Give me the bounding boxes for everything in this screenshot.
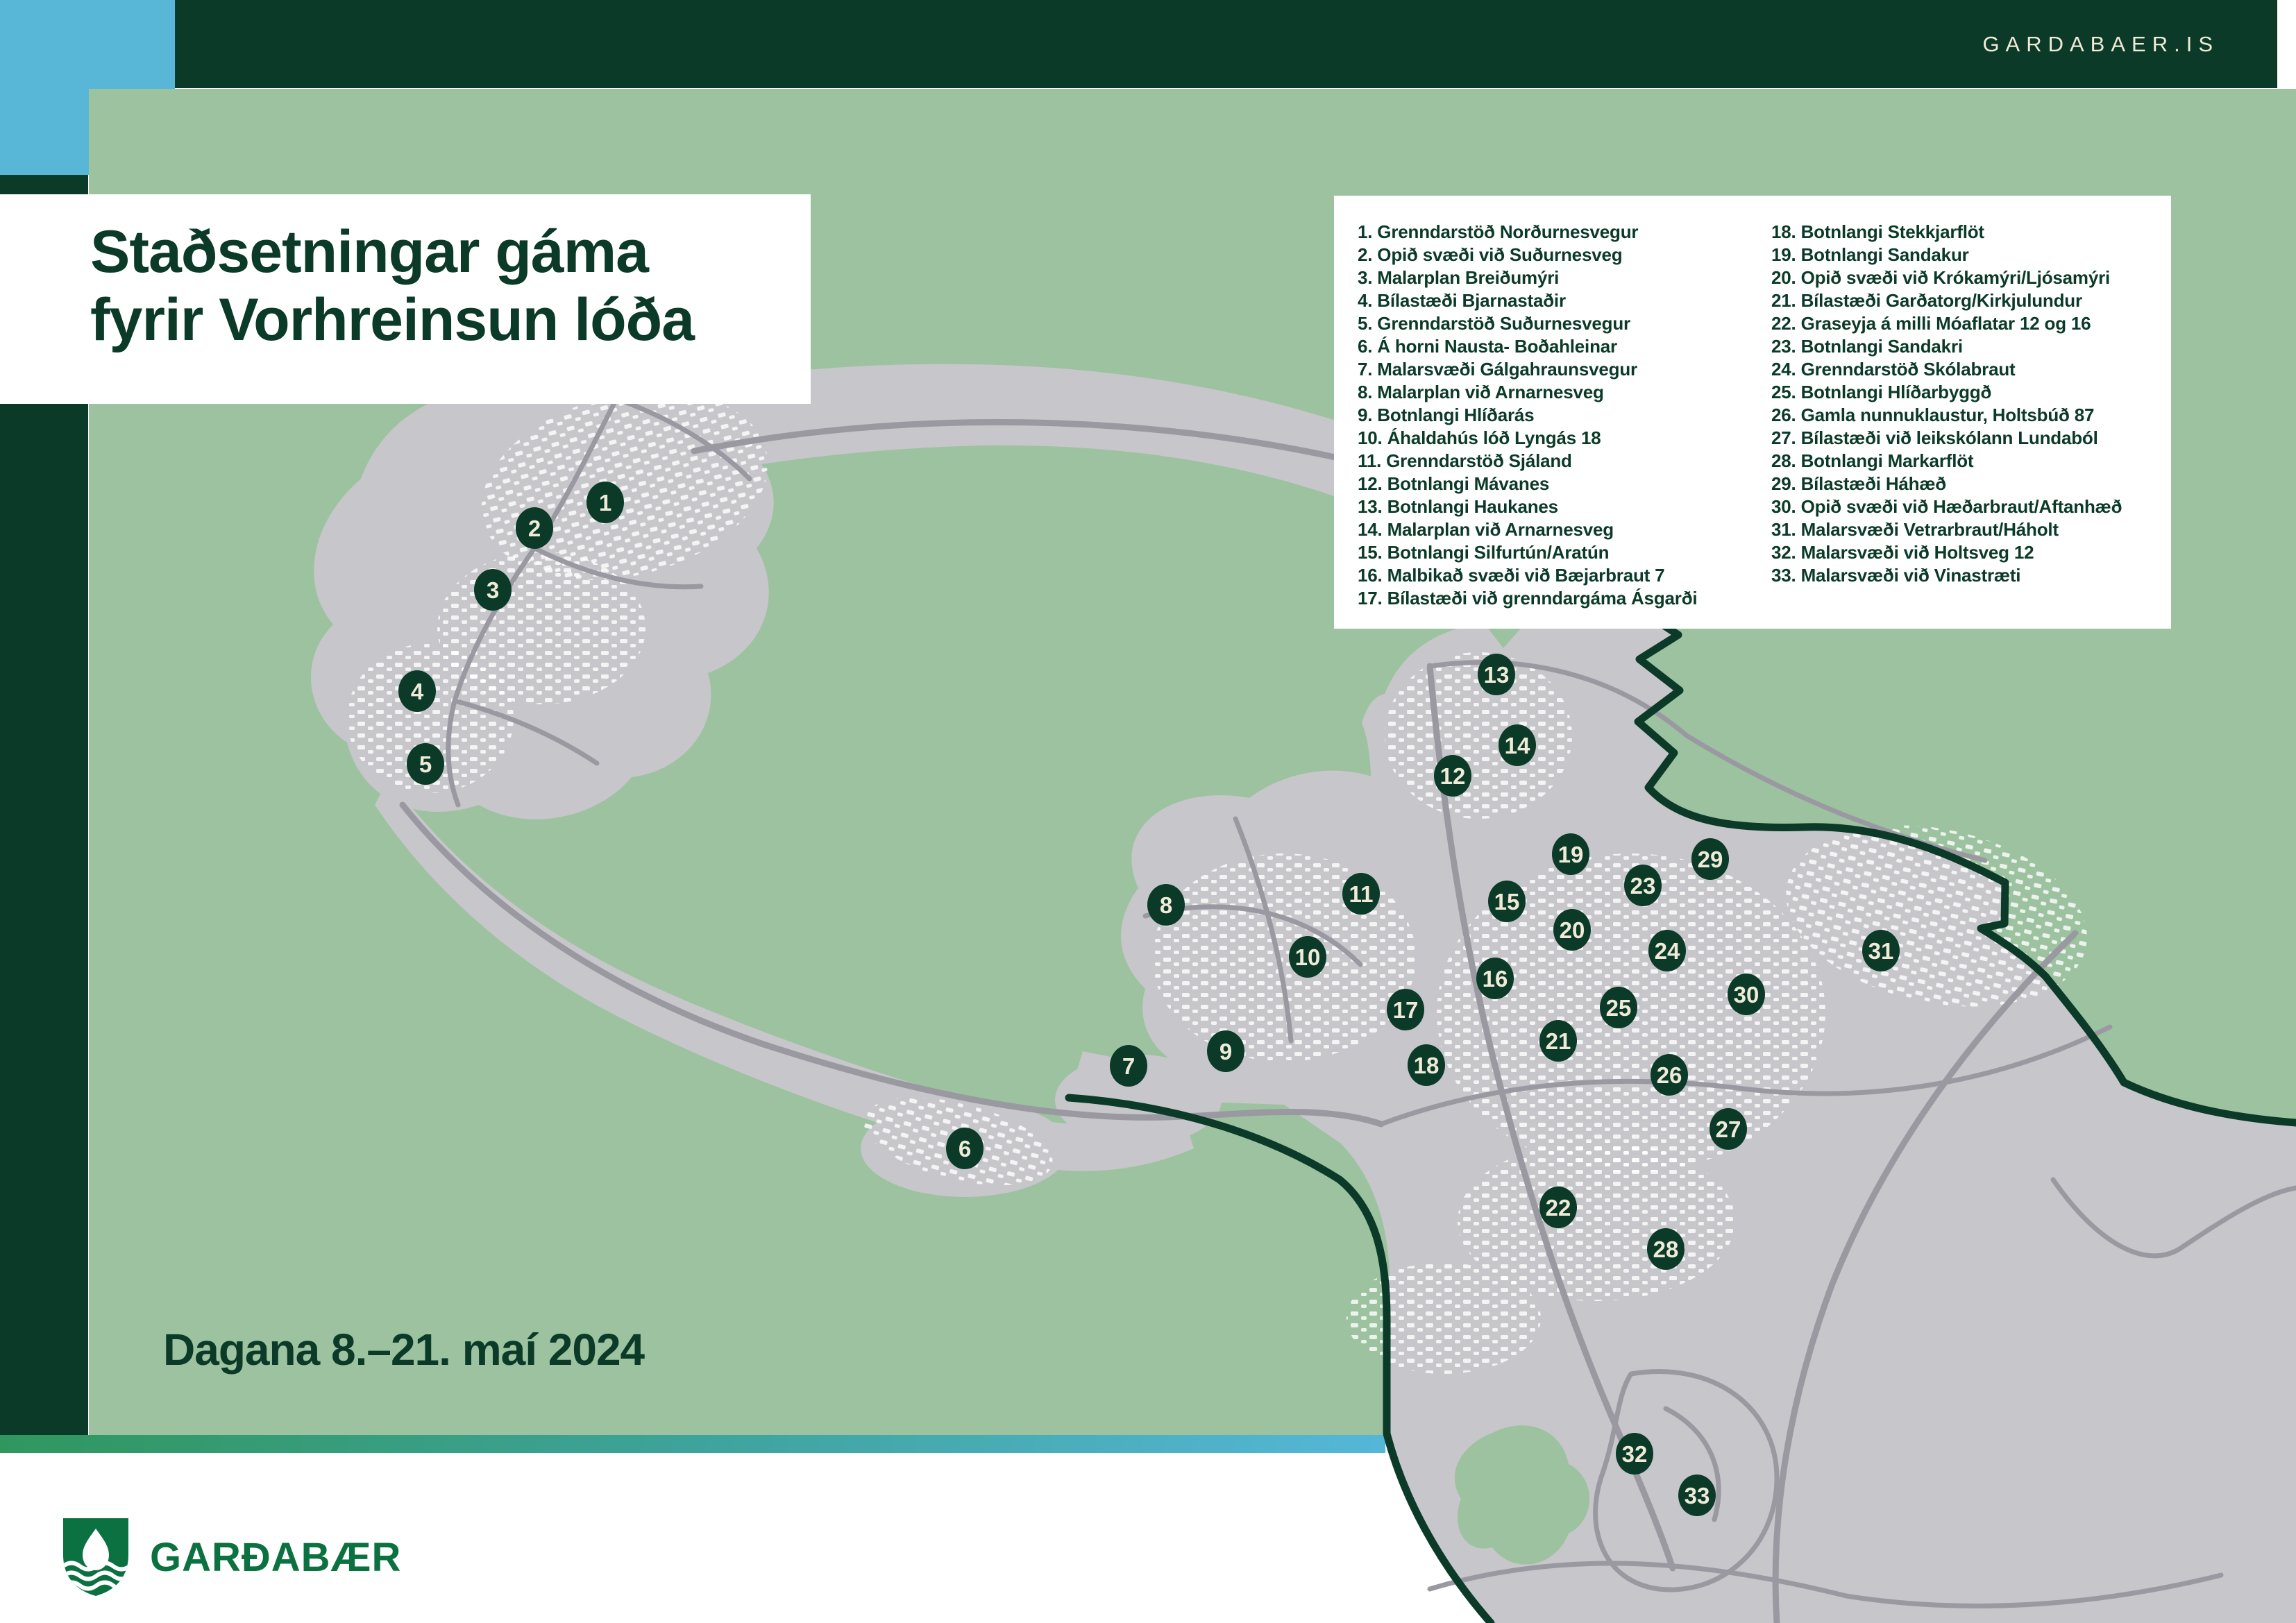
svg-text:14: 14 <box>1505 733 1530 758</box>
map-marker-22: 22 <box>1539 1187 1577 1228</box>
map-marker-16: 16 <box>1476 958 1514 999</box>
legend-item-3: 3. Malarplan Breiðumýri <box>1358 266 1750 289</box>
legend-item-26: 26. Gamla nunnuklaustur, Holtsbúð 87 <box>1771 404 2160 427</box>
map-marker-13: 13 <box>1478 654 1515 695</box>
svg-text:2: 2 <box>528 516 541 541</box>
legend-column-1: 1. Grenndarstöð Norðurnesvegur2. Opið sv… <box>1358 221 1750 610</box>
map-marker-7: 7 <box>1110 1045 1147 1087</box>
map-marker-1: 1 <box>586 482 624 523</box>
svg-text:33: 33 <box>1685 1483 1710 1509</box>
legend-box: 1. Grenndarstöð Norðurnesvegur2. Opið sv… <box>1334 196 2171 629</box>
legend-item-16: 16. Malbikað svæði við Bæjarbraut 7 <box>1358 564 1750 587</box>
legend-item-20: 20. Opið svæði við Krókamýri/Ljósamýri <box>1771 266 2160 289</box>
legend-item-25: 25. Botnlangi Hlíðarbyggð <box>1771 381 2160 404</box>
legend-item-27: 27. Bílastæði við leikskólann Lundaból <box>1771 427 2160 450</box>
svg-text:25: 25 <box>1606 995 1632 1021</box>
map-marker-11: 11 <box>1342 873 1380 915</box>
svg-text:20: 20 <box>1560 917 1585 943</box>
map-marker-33: 33 <box>1678 1475 1716 1516</box>
svg-text:12: 12 <box>1440 763 1466 789</box>
legend-item-9: 9. Botnlangi Hlíðarás <box>1358 404 1750 427</box>
svg-text:7: 7 <box>1122 1053 1135 1079</box>
map-marker-12: 12 <box>1434 755 1471 797</box>
legend-item-15: 15. Botnlangi Silfurtún/Aratún <box>1358 541 1750 564</box>
legend-item-7: 7. Malarsvæði Gálgahraunsvegur <box>1358 358 1750 381</box>
svg-text:13: 13 <box>1484 662 1510 688</box>
svg-text:6: 6 <box>959 1136 971 1162</box>
title-box: Staðsetningar gáma fyrir Vorhreinsun lóð… <box>0 194 811 404</box>
svg-text:26: 26 <box>1657 1062 1682 1088</box>
map-marker-32: 32 <box>1616 1433 1653 1475</box>
legend-item-22: 22. Graseyja á milli Móaflatar 12 og 16 <box>1771 312 2160 335</box>
svg-text:30: 30 <box>1734 982 1759 1008</box>
legend-item-18: 18. Botnlangi Stekkjarflöt <box>1771 221 2160 244</box>
map-marker-8: 8 <box>1147 884 1185 926</box>
svg-text:28: 28 <box>1653 1237 1679 1262</box>
svg-text:29: 29 <box>1698 847 1723 872</box>
page-title: Staðsetningar gáma fyrir Vorhreinsun lóð… <box>0 194 811 354</box>
svg-text:21: 21 <box>1546 1028 1571 1054</box>
legend-item-2: 2. Opið svæði við Suðurnesveg <box>1358 244 1750 266</box>
svg-text:31: 31 <box>1868 938 1894 964</box>
map-marker-24: 24 <box>1648 930 1686 971</box>
legend-item-28: 28. Botnlangi Markarflöt <box>1771 450 2160 473</box>
map-marker-31: 31 <box>1862 930 1900 971</box>
svg-text:22: 22 <box>1546 1195 1571 1221</box>
svg-text:15: 15 <box>1494 889 1520 915</box>
legend-item-8: 8. Malarplan við Arnarnesveg <box>1358 381 1750 404</box>
svg-text:8: 8 <box>1160 892 1172 918</box>
date-range-label: Dagana 8.–21. maí 2024 <box>163 1324 644 1375</box>
gardabaer-logo: GARÐABÆR <box>61 1516 401 1598</box>
map-marker-29: 29 <box>1691 838 1729 880</box>
map-marker-10: 10 <box>1289 936 1326 978</box>
svg-text:18: 18 <box>1414 1053 1440 1078</box>
svg-text:27: 27 <box>1716 1116 1741 1142</box>
legend-item-10: 10. Áhaldahús lóð Lyngás 18 <box>1358 427 1750 450</box>
legend-item-17: 17. Bílastæði við grenndargáma Ásgarði <box>1358 587 1750 610</box>
map-marker-19: 19 <box>1552 833 1589 875</box>
map-marker-17: 17 <box>1387 989 1424 1030</box>
legend-item-29: 29. Bílastæði Háhæð <box>1771 473 2160 495</box>
legend-item-13: 13. Botnlangi Haukanes <box>1358 495 1750 518</box>
legend-item-21: 21. Bílastæði Garðatorg/Kirkjulundur <box>1771 289 2160 312</box>
legend-item-32: 32. Malarsvæði við Holtsveg 12 <box>1771 541 2160 564</box>
map-marker-18: 18 <box>1408 1044 1445 1086</box>
legend-item-4: 4. Bílastæði Bjarnastaðir <box>1358 289 1750 312</box>
svg-text:23: 23 <box>1630 873 1656 899</box>
coat-of-arms-shield-icon <box>61 1516 130 1598</box>
map-marker-21: 21 <box>1539 1020 1577 1062</box>
legend-item-24: 24. Grenndarstöð Skólabraut <box>1771 358 2160 381</box>
svg-text:32: 32 <box>1622 1441 1648 1467</box>
legend-item-6: 6. Á horni Nausta- Boðahleinar <box>1358 335 1750 358</box>
svg-text:4: 4 <box>411 679 424 704</box>
legend-item-12: 12. Botnlangi Mávanes <box>1358 473 1750 495</box>
legend-item-11: 11. Grenndarstöð Sjáland <box>1358 450 1750 473</box>
legend-item-14: 14. Malarplan við Arnarnesveg <box>1358 518 1750 541</box>
legend-item-23: 23. Botnlangi Sandakri <box>1771 335 2160 358</box>
legend-item-33: 33. Malarsvæði við Vinastræti <box>1771 564 2160 587</box>
map-marker-14: 14 <box>1499 724 1536 766</box>
map-marker-9: 9 <box>1207 1030 1244 1072</box>
svg-text:19: 19 <box>1558 842 1584 867</box>
map-marker-4: 4 <box>398 670 436 712</box>
svg-text:5: 5 <box>419 751 432 777</box>
map-marker-20: 20 <box>1553 909 1591 951</box>
map-marker-6: 6 <box>946 1128 984 1169</box>
map-marker-26: 26 <box>1651 1054 1688 1096</box>
legend-column-2: 18. Botnlangi Stekkjarflöt19. Botnlangi … <box>1771 221 2160 610</box>
map-marker-25: 25 <box>1600 987 1637 1028</box>
legend-item-1: 1. Grenndarstöð Norðurnesvegur <box>1358 221 1750 244</box>
svg-text:11: 11 <box>1349 881 1374 907</box>
svg-text:24: 24 <box>1655 938 1680 964</box>
map-marker-2: 2 <box>516 507 553 549</box>
svg-text:3: 3 <box>487 577 499 603</box>
svg-text:17: 17 <box>1393 997 1419 1023</box>
svg-text:1: 1 <box>599 490 611 516</box>
map-marker-15: 15 <box>1488 881 1526 922</box>
map-marker-27: 27 <box>1710 1108 1747 1150</box>
svg-text:9: 9 <box>1219 1039 1232 1064</box>
logo-wordmark: GARÐABÆR <box>150 1534 401 1581</box>
map-marker-23: 23 <box>1624 865 1662 906</box>
svg-text:16: 16 <box>1483 966 1508 992</box>
map-marker-5: 5 <box>407 743 444 785</box>
map-marker-28: 28 <box>1647 1228 1685 1270</box>
svg-text:10: 10 <box>1295 944 1321 970</box>
legend-item-19: 19. Botnlangi Sandakur <box>1771 244 2160 266</box>
map-marker-3: 3 <box>474 569 512 611</box>
legend-item-30: 30. Opið svæði við Hæðarbraut/Aftanhæð <box>1771 495 2160 518</box>
map-marker-30: 30 <box>1728 974 1765 1015</box>
legend-item-5: 5. Grenndarstöð Suðurnesvegur <box>1358 312 1750 335</box>
legend-item-31: 31. Malarsvæði Vetrarbraut/Háholt <box>1771 518 2160 541</box>
